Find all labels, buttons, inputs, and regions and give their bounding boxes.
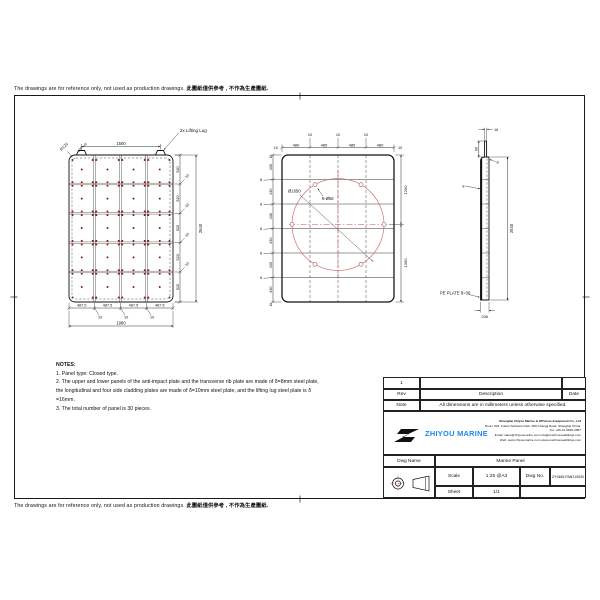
hole [313,183,317,187]
rib-view: Ø1650 6-Ø56 10 10 10 480 485 485 480 10 … [260,133,408,306]
rev-desc-cell [420,377,562,389]
engineering-drawing-svg: 1500 2x Lifting Lug R120 40 240 487.5 48… [0,0,600,600]
weld-dot [81,181,83,183]
rib-leader [264,253,273,254]
weld-dot [169,269,171,271]
rib-leader [264,180,273,181]
weld-dot [107,185,109,187]
weld-dot [72,244,74,246]
rib-leader [264,278,273,279]
date-header: Date [562,389,586,400]
weld-dot [144,181,146,183]
dim-label: 485 [321,142,328,147]
weld-dot [81,227,83,229]
rev-date-cell [562,377,586,389]
dim-label: 8 [260,178,262,182]
weld-dot [133,256,135,258]
dim-label: 480 [293,142,300,147]
dim-label: 430 [269,164,273,170]
weld-dot [159,214,161,216]
sheet-value: 1/1 [473,486,520,498]
weld-dot [121,185,123,187]
weld-dot [147,211,149,213]
notes-block: NOTES: 1. Panel type: Closed type. 2. Th… [56,361,319,413]
weld-dot [118,211,120,213]
weld-dot [169,244,171,246]
hole [359,183,363,187]
weld-dot [133,269,135,271]
hole-callout-label: 6-Ø56 [322,196,334,201]
weld-dot [107,198,109,200]
weld-dot [144,273,146,275]
weld-dot [159,273,161,275]
dim-label: 90 [474,147,478,151]
weld-dot [159,185,161,187]
gap-leader [180,238,185,243]
weld-dot [107,269,109,271]
weld-dot [81,240,83,242]
weld-dot [92,181,94,183]
weld-dot [121,269,123,271]
weld-dot [92,269,94,271]
weld-dot [107,273,109,275]
weld-dot [169,273,171,275]
weld-dot [107,214,109,216]
weld-dot [169,181,171,183]
rev-number-cell: 1 [383,377,420,389]
dim-label: 485 [349,142,356,147]
title-block: 1 Rev Description Date Note All dimensio… [383,377,586,498]
gap-leader [180,267,185,272]
weld-dot [72,273,74,275]
hole [313,262,317,266]
weld-dot [169,185,171,187]
note-line: 2. The upper and lower panels of the ant… [56,378,319,387]
projection-symbol-icon [384,468,435,498]
dim-label: 206 [481,314,488,319]
weld-dot [147,159,149,161]
weld-dot [159,244,161,246]
weld-dot [107,244,109,246]
disclaimer-zh: 此圖紙僅供參考 , 不作為生產圖紙. [186,503,268,509]
dim-label: 430 [269,262,273,268]
dim-label: 520 [176,284,180,290]
weld-dot [147,273,149,275]
note-label-cell: Note [383,400,420,411]
weld-dot [95,181,97,183]
weld-dot [159,169,161,171]
weld-dot [169,297,171,299]
dim-label: 8 [260,203,262,207]
dwg-name-value: Marine Panel [435,455,586,467]
weld-dot [144,211,146,213]
note-line: 3. The total number of panel is 30 piece… [56,405,319,414]
weld-dot [92,185,94,187]
weld-dot [118,159,120,161]
drawing-sheet: The drawings are for reference only, not… [0,0,600,600]
weld-dot [133,198,135,200]
weld-dot [169,211,171,213]
weld-dot [169,214,171,216]
weld-dot [81,211,83,213]
dim-label: 10 [184,232,190,238]
weld-dot [159,227,161,229]
weld-dot [107,181,109,183]
dim-label: 2640 [509,223,514,233]
dim-label: 8 [260,276,262,280]
weld-dot [133,185,135,187]
gap-leader [180,209,185,214]
weld-dot [95,297,97,299]
weld-dot [81,269,83,271]
weld-dot [95,159,97,161]
weld-dot [159,198,161,200]
company-address: Shanghai Zhiyou Marine & Offshore Equipm… [471,419,581,443]
weld-dot [81,185,83,187]
rib-dim-aux [264,146,396,304]
weld-dot [144,185,146,187]
dim-label: 8 [497,161,499,165]
weld-dot [133,211,135,213]
weld-dot [159,256,161,258]
weld-dot [92,214,94,216]
hole [359,262,363,266]
dim-label: 8 [260,227,262,231]
weld-dot [144,159,146,161]
weld-dot [72,181,74,183]
gap-leader [95,308,100,315]
dim-label: 10 [274,146,278,150]
weld-dot [95,240,97,242]
weld-dot [118,240,120,242]
dim-label: 10 [269,155,273,159]
dim-label: 10 [269,303,273,307]
dim-label: 8 [260,252,262,256]
dim-label: 487.5 [129,304,139,308]
weld-dot [81,256,83,258]
note-line: 1. Panel type: Closed type. [56,370,319,379]
weld-dot [107,256,109,258]
weld-dot [81,214,83,216]
weld-dot [95,185,97,187]
weld-dot [144,214,146,216]
weld-dot [72,297,74,299]
weld-dot [144,244,146,246]
weld-dot [92,273,94,275]
dim-label: 8 [462,185,464,189]
weld-dot [72,240,74,242]
weld-dot [72,185,74,187]
dim-label: 10 [308,133,312,137]
weld-dot [95,214,97,216]
weld-dot [133,286,135,288]
dim-label: 520 [176,254,180,260]
weld-dot [121,273,123,275]
weld-dot [133,244,135,246]
weld-dot [92,244,94,246]
circle-diameter-label: Ø1650 [288,189,301,194]
zhiyou-logo-icon [392,426,422,444]
weld-dot [118,273,120,275]
weld-dot [144,297,146,299]
weld-dot [147,185,149,187]
dim-label: 10 [398,146,402,150]
weld-dot [169,159,171,161]
dim-label: 520 [176,195,180,201]
dim-label: 10 [184,173,190,179]
pe-plate-label: PE PLATE δ=30 [440,291,471,296]
weld-dot [118,181,120,183]
dim-label: 16 [494,128,498,132]
weld-dot [159,286,161,288]
weld-dot [121,159,123,161]
weld-dot [107,286,109,288]
rib-leader [264,229,273,230]
weld-dot [133,227,135,229]
diameter-leader [300,195,374,262]
dim-label: 430 [269,238,273,244]
weld-dot [92,159,94,161]
empty-cell [520,486,586,498]
note-text-cell: All dimensions are in millimeters unless… [420,400,586,411]
weld-dot [107,211,109,213]
dim-label: 10 [184,261,190,267]
weld-dot [147,181,149,183]
weld-dot [72,214,74,216]
notes-title: NOTES: [56,361,319,370]
weld-dot [121,297,123,299]
weld-dot [81,286,83,288]
weld-dot [133,181,135,183]
weld-dot [133,273,135,275]
weld-dot [72,269,74,271]
weld-dot [147,214,149,216]
weld-dot [72,211,74,213]
weld-dot [118,244,120,246]
dwg-no-label: Dwg No. [520,467,550,486]
hole [290,223,294,227]
weld-dot [95,273,97,275]
weld-dot [147,269,149,271]
plan-view: 1500 2x Lifting Lug R120 40 240 487.5 48… [59,128,208,328]
weld-dot [159,211,161,213]
weld-dot [144,240,146,242]
weld-dot [95,244,97,246]
weld-dot [159,240,161,242]
lug-width-label: 40 [83,142,88,147]
corner-radius-label: R120 [59,141,70,152]
dim-label: 10 [124,316,128,320]
dim-label: 10 [150,316,154,320]
weld-dot [121,240,123,242]
weld-dot [107,227,109,229]
weld-dot [118,269,120,271]
dim-label: 480 [377,142,384,147]
dim-label: 487.5 [77,304,87,308]
weld-dot [95,269,97,271]
weld-dot [118,214,120,216]
weld-dot [72,159,74,161]
company-cell: ZHIYOU MARINE Shanghai Zhiyou Marine & O… [383,411,586,455]
weld-dot [92,240,94,242]
hole [382,223,386,227]
dim-label: 487.5 [155,304,165,308]
bottom-disclaimer: The drawings are for reference only, not… [14,501,268,509]
description-header: Description [420,389,562,400]
weld-dot [133,240,135,242]
weld-dot [81,169,83,171]
disclaimer-en: The drawings are for reference only, not… [14,503,186,509]
weld-dot [92,297,94,299]
weld-dot [133,169,135,171]
dim-label: 520 [176,166,180,172]
gap-leader [121,308,126,315]
dim-label: 1500 [116,141,126,146]
weld-dot [95,211,97,213]
dim-label: 1980 [116,321,126,326]
address-line: Web: www.zhiyoumarine.com www.machinesea… [471,438,581,443]
dim-label: 487.5 [103,304,113,308]
weld-dot [147,240,149,242]
dim-label: 2640 [198,223,203,233]
weld-dot [81,198,83,200]
dim-label: 10 [336,133,340,137]
dwg-name-label: Dwg Name [383,455,435,467]
note-line: =16mm. [56,396,319,405]
weld-dot [121,181,123,183]
weld-dot [159,181,161,183]
lifting-lug-callout: 2x Lifting Lug [180,128,207,133]
note-line: the longitudinal and four side cladding … [56,387,319,396]
weld-dot [133,214,135,216]
lifting-lug-right [156,151,166,156]
dim-label: 10 [98,316,102,320]
side-view: 16 90 8 8 2640 206 PE PLATE δ=30 [440,128,514,319]
weld-dot [107,240,109,242]
scale-label: Scale [435,467,473,486]
weld-dot [118,185,120,187]
side-lug [485,141,487,157]
weld-dot [81,244,83,246]
scale-value: 1:25 @A3 [473,467,520,486]
dim-label: 430 [269,287,273,293]
dim-label: 1390 [403,258,408,268]
dim-label: 10 [184,203,190,209]
weld-dot [121,211,123,213]
weld-dot [118,297,120,299]
projection-symbol-cell [383,467,435,498]
dim-label: 10 [364,133,368,137]
dim-label: 1250 [403,185,408,195]
weld-dot [92,211,94,213]
dim-label: 430 [269,213,273,219]
dim-label: 430 [269,189,273,195]
weld-dot [121,244,123,246]
dim-label: 520 [176,225,180,231]
weld-dot [169,240,171,242]
weld-dot [81,273,83,275]
sheet-label: Sheet [435,486,473,498]
plan-outline [69,155,173,302]
gap-leader [180,179,185,184]
weld-dot [159,269,161,271]
weld-dot [144,269,146,271]
gap-leader [147,308,152,315]
weld-dot [107,169,109,171]
weld-dot [147,297,149,299]
weld-dot [121,214,123,216]
rev-header: Rev [383,389,420,400]
weld-dot [147,244,149,246]
dwg-no-value: ZY9469-PAN210630 [550,467,586,486]
rib-leader [264,204,273,205]
